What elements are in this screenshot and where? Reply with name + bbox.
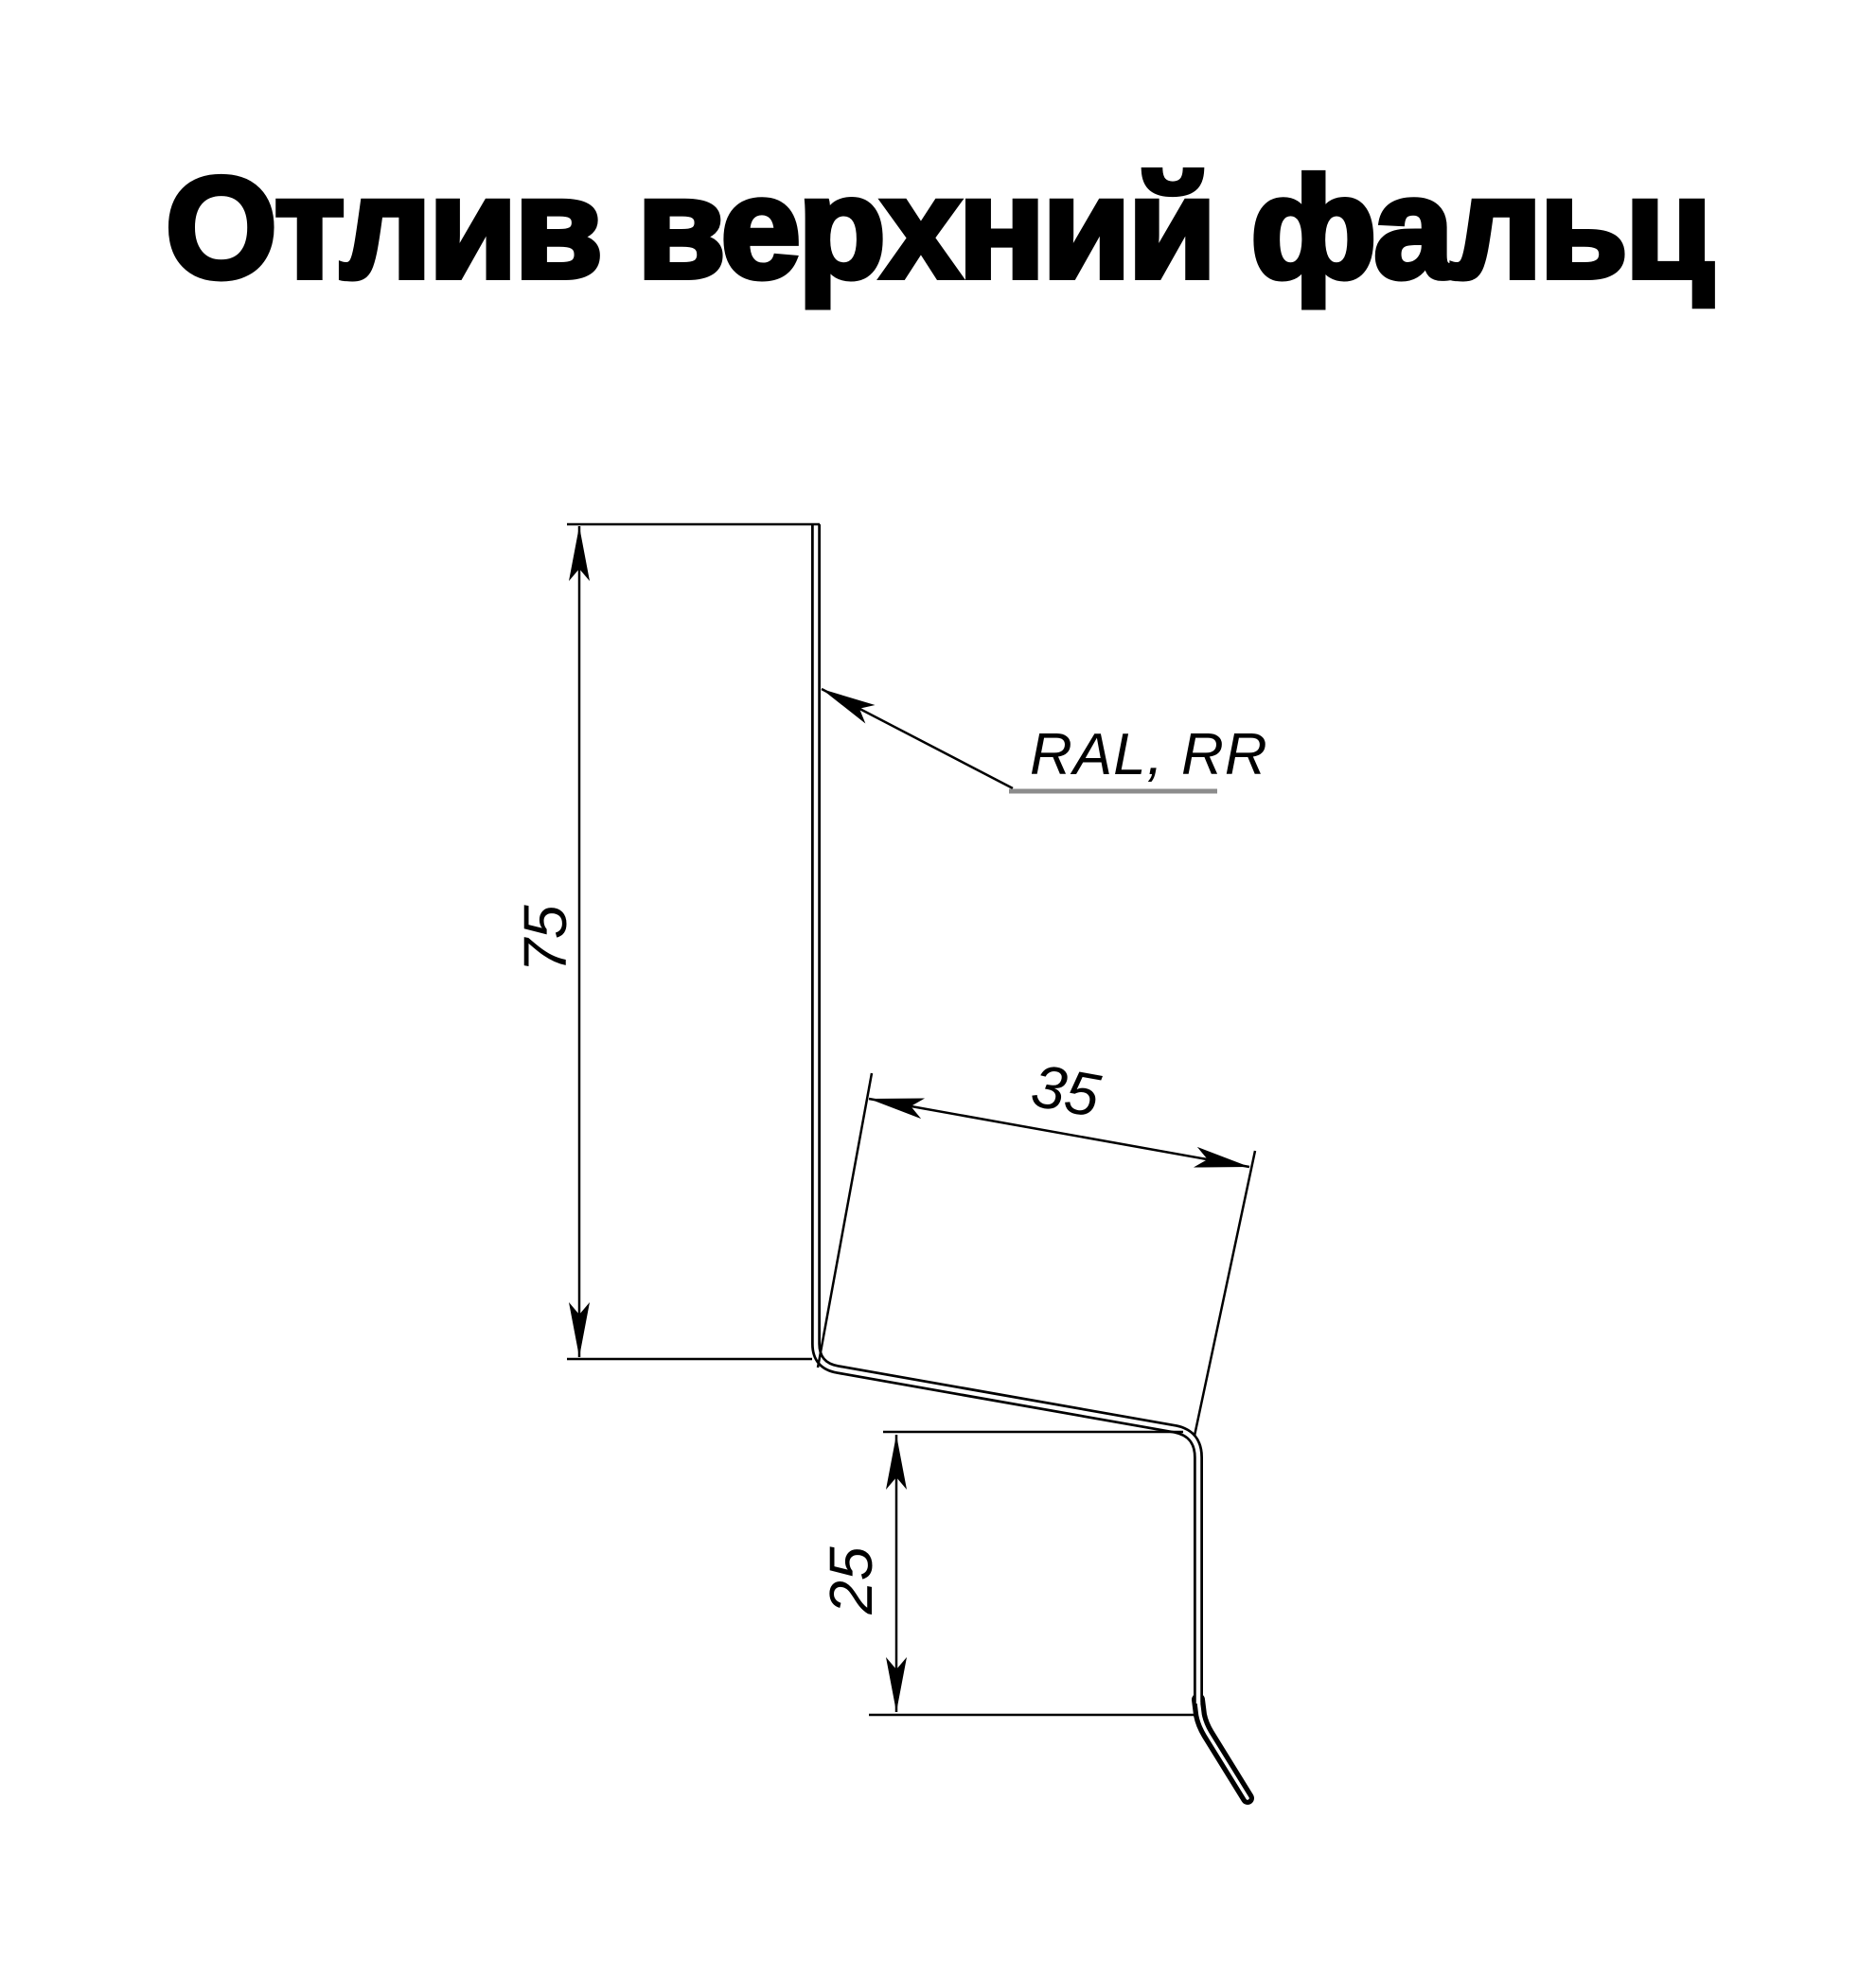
drawing-page: Отлив верхний фальц 75 35 xyxy=(0,0,1876,1977)
dim35-extension-right xyxy=(1195,1151,1255,1436)
leader-arrow-icon xyxy=(817,680,876,723)
material-label: RAL, RR xyxy=(1030,722,1268,787)
dimension-75: 75 xyxy=(511,524,820,1359)
dim25-label: 25 xyxy=(817,1546,885,1615)
profile-sheet-core xyxy=(816,524,1198,1703)
profile-drawing: 75 35 25 RAL, RR xyxy=(0,0,1876,1977)
dim35-arrow-left-icon xyxy=(867,1088,925,1119)
dim35-label: 35 xyxy=(1026,1051,1105,1131)
profile-sheet-outer xyxy=(816,524,1198,1703)
dimension-25: 25 xyxy=(817,1432,1195,1715)
dim35-arrow-right-icon xyxy=(1194,1147,1251,1177)
dim35-extension-left xyxy=(818,1073,872,1368)
material-leader: RAL, RR xyxy=(817,680,1268,791)
dim75-label: 75 xyxy=(511,905,579,973)
